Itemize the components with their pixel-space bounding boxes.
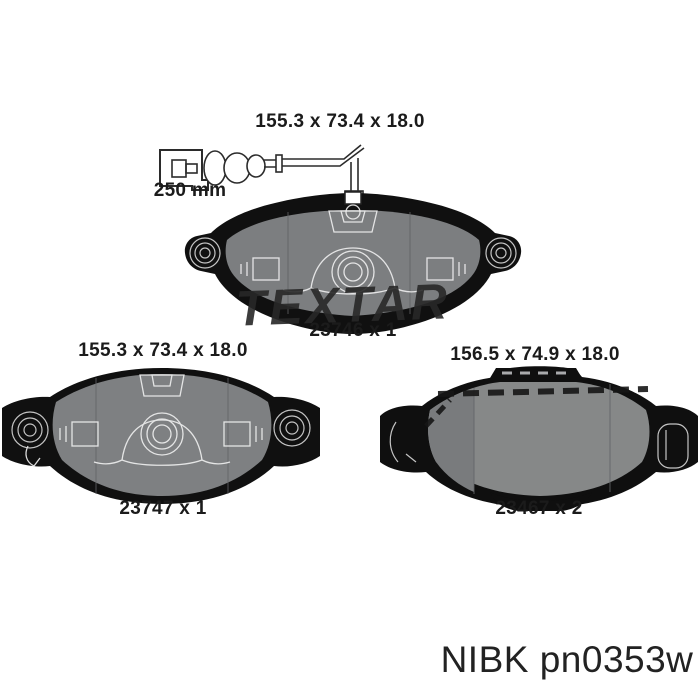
brake-pad-top: TEXTAR: [183, 190, 523, 338]
pad-left-dimensions: 155.3 x 73.4 x 18.0: [13, 341, 313, 362]
brake-pad-right: [378, 364, 700, 516]
pad-right-label: 23467 x 2: [419, 499, 659, 520]
pad-right-dimensions: 156.5 x 74.9 x 18.0: [385, 345, 685, 366]
pad-left-label: 23747 x 1: [43, 499, 283, 520]
brand-part-number: NIBK pn0353w: [392, 640, 700, 681]
pad-top-label: 23746 x 1: [273, 321, 433, 342]
brake-pad-left: [0, 362, 322, 520]
product-image: 155.3 x 73.4 x 18.0 250 mm: [0, 0, 700, 700]
sensor-clip: [345, 192, 361, 204]
pad-top-dimensions: 155.3 x 73.4 x 18.0: [190, 112, 490, 133]
